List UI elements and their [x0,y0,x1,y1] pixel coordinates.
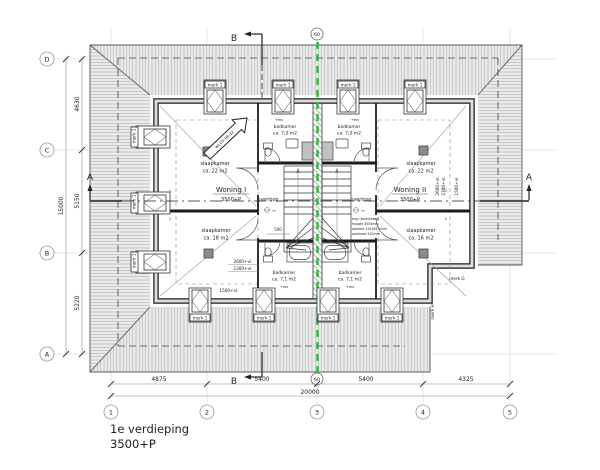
stair-spec-2: hoogte 3500mm [352,222,379,226]
bath-tr-area: ca. 7,3 m2 [337,131,361,137]
mark-1-b: 1 [169,217,171,221]
title-block: 1e verdieping 3500+P [110,422,189,451]
grid-bubble-row-d: D [40,52,54,66]
dim-bottom-3: 5400 [358,376,373,383]
dim-left-1: 4630 [74,96,81,111]
svg-text:5: 5 [508,408,512,416]
bath-tr-label: badkamer [338,124,361,130]
bedroom-bl-area: ca. 18 m2 [204,236,229,242]
bath-bl-mv: +mv [280,285,288,289]
bath-bl-area: ca. 7,1 m2 [272,277,296,283]
floorplan-svg: 60 60 500 [0,0,600,470]
mark-1-d: 1 [445,217,447,221]
dormer-left-3: merk 1 [131,251,170,273]
svg-text:B: B [231,377,237,387]
height-2300-right: 2300+vl. [441,176,446,195]
dormer-top-4: merk 1 [404,80,426,114]
grid-bubble-col-1: 1 [104,405,118,419]
bath-br-mv: +mv [346,285,354,289]
bath-tl-area: ca. 7,3 m2 [273,131,297,137]
hall-right-im: im [361,209,365,213]
bath-bl-label: badkamer [273,270,296,276]
height-2600-right: 2600+vl. [435,176,440,195]
grid-bubble-row-c: C [40,143,54,157]
svg-text:merk 1: merk 1 [276,83,291,88]
dormer-top-2: merk 1 [272,80,294,114]
unit2-name: Woning II [394,186,426,194]
svg-text:B: B [231,34,237,44]
dim-bottom-1: 4875 [151,376,166,383]
stair-spec-3: optrede 19x184,2mm [352,227,387,231]
svg-text:merk 1: merk 1 [408,83,423,88]
svg-text:merk 1: merk 1 [193,316,208,321]
drawing-title: 1e verdieping [110,422,189,436]
bath-br-label: badkamer [339,270,362,276]
unit2-level: 3500+P [400,197,420,203]
dormer-left-2: merk 1 [131,192,170,214]
svg-text:A: A [87,173,94,183]
bath-br-area: ca. 7,1 m2 [338,277,362,283]
svg-text:C: C [45,146,50,154]
dim-left-3: 5220 [74,295,81,310]
stair-width-value: 500 [274,227,282,232]
drawing-level: 3500+P [110,437,156,451]
mark-1-a: 1 [169,189,171,193]
merk-g-label: merk G [449,276,464,281]
bath-tl-mv: +mv [275,118,283,122]
grid-bubble-row-a: A [40,347,54,361]
svg-text:merk 1: merk 1 [132,194,137,209]
hall-left-im: im [272,209,276,213]
bedroom-tr-area: ca. 22 m2 [409,169,434,175]
dim-left-total: 15000 [58,196,65,215]
bedroom-br-area: ca. 16 m2 [409,236,434,242]
hall-left-label: overloop [258,197,279,203]
bath-tl-label: badkamer [274,124,297,130]
svg-text:merk 1: merk 1 [321,316,336,321]
stair-spec-1: trap (bereikbaar) [352,217,379,221]
dim-bottom-total: 20000 [300,389,319,396]
bedroom-br-label: slaapkamer [406,228,436,234]
dim-bottom-4: 4325 [458,376,473,383]
grid-bubble-row-b: B [40,246,54,260]
height-1500-left: 1500+vl. [219,288,238,293]
bedroom-bl-label: slaapkamer [201,228,231,234]
hall-right-label: overloop [351,197,372,203]
bedroom-tl-label: slaapkamer [200,161,230,167]
svg-text:4: 4 [421,408,425,416]
grid-bubble-col-3: 3 [310,405,324,419]
height-2600-left: 2600+vl. [233,259,252,264]
svg-text:D: D [44,55,49,63]
dim-left-2: 5150 [74,193,81,208]
svg-text:2: 2 [205,408,209,416]
unit1-name: Woning I [216,186,246,194]
svg-text:A: A [526,173,533,183]
svg-text:3: 3 [315,408,319,416]
bedroom-tl-area: ca. 22 m2 [203,169,228,175]
height-2300-left: 2300+vl. [233,266,252,271]
merk-labels: merk G merk H [430,276,465,320]
dormer-bottom-1: merk 1 [189,288,211,322]
dormer-bottom-2: merk 1 [253,288,275,322]
bath-tr-mv: +mv [351,118,359,122]
svg-text:merk 1: merk 1 [341,83,356,88]
duct-left [302,142,313,160]
svg-text:1: 1 [109,408,113,416]
bedroom-tr-label: slaapkamer [406,161,436,167]
party-wall-mark-top: 60 [314,32,320,38]
dormer-top-3: merk 1 [337,80,359,114]
dim-bottom-2: 5400 [254,376,269,383]
height-1500-right: 1500+vl. [454,176,459,195]
merk-h-label: merk H [430,304,435,319]
dormer-left-1: merk 1 [131,126,170,148]
svg-text:merk 1: merk 1 [132,253,137,268]
unit1-level: 3500+P [221,197,241,203]
duct-right [322,142,333,160]
grid-bubble-col-4: 4 [416,405,430,419]
svg-text:A: A [45,350,50,358]
floorplan-drawing: 60 60 500 [0,0,600,470]
dormer-bottom-4: merk 1 [381,288,403,322]
svg-text:merk 1: merk 1 [385,316,400,321]
svg-text:merk 1: merk 1 [257,316,272,321]
grid-bubble-col-5: 5 [503,405,517,419]
svg-text:merk 1: merk 1 [208,83,223,88]
svg-text:B: B [45,249,49,257]
dormer-bottom-3: merk 1 [317,288,339,322]
stair-spec-4: aantrede 220mm [352,232,380,236]
dormer-top-1: merk 1 [204,80,226,114]
svg-text:merk 1: merk 1 [132,128,137,143]
grid-bubble-col-2: 2 [200,405,214,419]
